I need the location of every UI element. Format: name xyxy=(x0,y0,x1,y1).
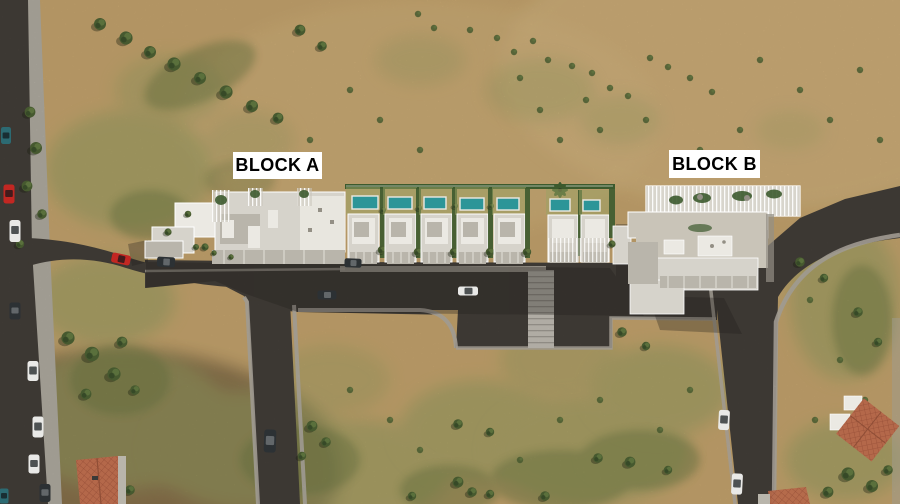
car xyxy=(458,287,478,296)
villa xyxy=(419,187,458,264)
block-a-label: BLOCK A xyxy=(233,152,322,179)
villas-row xyxy=(345,182,631,264)
villa xyxy=(346,187,386,264)
villa xyxy=(455,187,494,264)
car xyxy=(10,220,21,242)
car xyxy=(4,185,15,204)
swimming-pool xyxy=(497,198,519,210)
swimming-pool xyxy=(460,198,484,210)
car xyxy=(157,257,175,268)
car xyxy=(718,410,730,431)
car xyxy=(1,127,11,144)
car xyxy=(318,291,337,300)
car xyxy=(33,417,44,438)
block-b-label: BLOCK B xyxy=(669,150,760,178)
swimming-pool xyxy=(352,196,378,209)
car xyxy=(29,455,40,474)
villa xyxy=(383,187,422,264)
twin-villa-pergola xyxy=(548,238,610,262)
swimming-pool xyxy=(388,197,412,209)
car xyxy=(731,473,743,495)
car xyxy=(40,484,51,502)
car xyxy=(0,489,9,504)
terracotta-house-bottom-left xyxy=(76,456,126,504)
swimming-pool xyxy=(583,200,600,211)
villa xyxy=(492,187,531,264)
swimming-pool xyxy=(550,199,570,211)
car xyxy=(264,429,277,452)
aerial-site-render: BLOCK A BLOCK B xyxy=(0,0,900,504)
block-a-terrace-lower xyxy=(145,241,183,258)
site-plan-canvas xyxy=(0,0,900,504)
car xyxy=(344,258,361,268)
car xyxy=(28,361,39,381)
swimming-pool xyxy=(424,197,446,209)
car xyxy=(10,303,21,320)
